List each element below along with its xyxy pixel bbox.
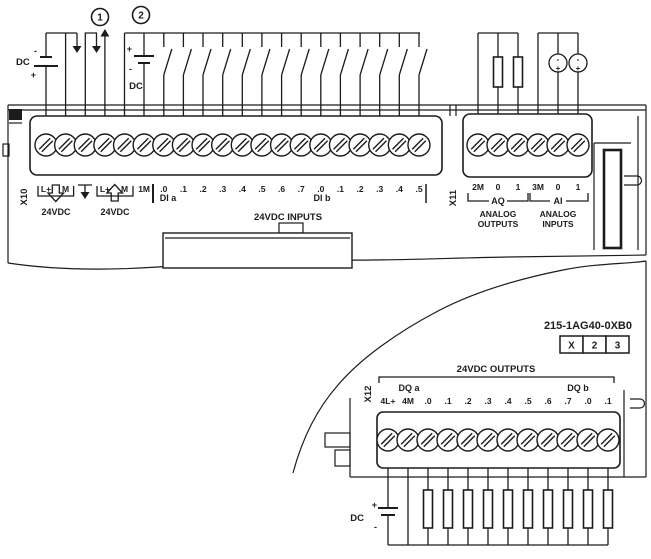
sensor-power-out-arrows	[73, 29, 110, 116]
terminal-label: .1	[180, 184, 187, 194]
terminal-label: 3M	[532, 182, 544, 192]
output-supply-label: DC	[350, 513, 364, 524]
screw-terminal-icon	[597, 429, 619, 451]
din-clip-icon	[9, 109, 22, 120]
di-a-label: DI a	[160, 193, 178, 203]
analog-inputs-caption-2: INPUTS	[542, 219, 574, 229]
callout-2-number: 2	[138, 11, 144, 22]
x11-terminal-labels: 2M013M01	[472, 182, 581, 192]
device-id: 215-1AG40-0XB0 X 2 3	[544, 320, 632, 353]
terminal-label: .3	[219, 184, 226, 194]
input-supply: + - DC	[125, 33, 421, 116]
order-box-char: 3	[615, 341, 621, 352]
x11-terminal-block	[463, 114, 592, 177]
screw-terminal-icon	[349, 134, 371, 156]
analog-output-loads	[478, 33, 523, 114]
outputs-section-label: 24VDC OUTPUTS	[457, 364, 536, 375]
terminal-label: .4	[396, 184, 403, 194]
resistor-icon	[524, 490, 533, 528]
terminal-label: .6	[278, 184, 285, 194]
screw-terminal-icon	[388, 134, 410, 156]
terminal-label: 1	[576, 182, 581, 192]
input-switch-contacts	[164, 33, 427, 116]
x12-terminal-block	[377, 412, 620, 468]
terminal-label: .1	[444, 396, 451, 406]
terminal-label: .5	[524, 396, 531, 406]
screw-terminal-icon	[377, 429, 399, 451]
terminal-label: .4	[504, 396, 511, 406]
terminal-label: .1	[604, 396, 611, 406]
terminal-label: 4M	[402, 396, 414, 406]
wiring-diagram-page: 1 2 DC - + + - DC X10 L+ML+M1M.0.1.2.3.	[0, 0, 651, 554]
expansion-slot-bar	[604, 150, 621, 248]
screw-terminal-icon	[577, 429, 599, 451]
ground-icon-head	[81, 192, 90, 199]
callout-2: 2	[133, 7, 150, 24]
output-load-resistors	[424, 468, 613, 545]
terminal-label: .6	[544, 396, 551, 406]
resistor-icon	[424, 490, 433, 528]
screw-terminal-icon	[251, 134, 273, 156]
terminal-label: 2M	[472, 182, 484, 192]
screw-terminal-icon	[507, 134, 529, 156]
right-latch-icon	[624, 176, 642, 185]
order-box-char: 2	[592, 341, 598, 352]
sensor-out-caption: 24VDC	[100, 207, 130, 217]
terminal-label: .7	[564, 396, 571, 406]
terminal-label: .2	[464, 396, 471, 406]
resistor-icon	[604, 490, 613, 528]
screw-terminal-icon	[212, 134, 234, 156]
resistor-icon	[564, 490, 573, 528]
resistor-icon	[444, 490, 453, 528]
screw-terminal-icon	[567, 134, 589, 156]
analog-inputs-caption-1: ANALOG	[540, 209, 577, 219]
input-supply-plus: +	[127, 44, 132, 54]
source-minus: -	[577, 55, 580, 64]
terminal-label: .4	[239, 184, 246, 194]
screw-terminal-icon	[35, 134, 57, 156]
bottom-clip-detail	[325, 433, 350, 447]
terminal-label: .2	[357, 184, 364, 194]
dq-b-label: DQ b	[567, 383, 589, 393]
screw-terminal-icon	[397, 429, 419, 451]
input-supply-minus: -	[129, 64, 132, 74]
resistor-icon	[514, 57, 523, 87]
ai-label: AI	[554, 196, 563, 206]
di-b-label: DI b	[314, 193, 332, 203]
x12-labels: 24VDC OUTPUTS DQ a DQ b X12 4L+4M.0.1.2.…	[363, 364, 614, 406]
screw-terminal-icon	[537, 429, 559, 451]
terminal-label: 1	[516, 182, 521, 192]
sensor-arrow-wire-2	[85, 33, 96, 116]
plc-wiring-diagram: 1 2 DC - + + - DC X10 L+ML+M1M.0.1.2.3.	[0, 0, 651, 554]
screw-terminal-icon	[477, 429, 499, 451]
screw-terminal-icon	[153, 134, 175, 156]
x12-terminal-labels: 4L+4M.0.1.2.3.4.5.6.7.0.1	[381, 396, 612, 406]
x10-terminal-block	[30, 116, 442, 175]
callout-1: 1	[92, 9, 109, 26]
screw-terminal-icon	[547, 134, 569, 156]
aq-label: AQ	[491, 196, 505, 206]
terminal-label: .2	[199, 184, 206, 194]
screw-terminal-icon	[527, 134, 549, 156]
terminal-label: .0	[584, 396, 591, 406]
cpu-supply-label: DC	[16, 57, 30, 68]
screw-terminal-icon	[114, 134, 136, 156]
terminal-label: .3	[376, 184, 383, 194]
source-plus: +	[556, 64, 561, 73]
screw-terminal-icon	[133, 134, 155, 156]
label-plate-tab	[279, 223, 303, 233]
part-number: 215-1AG40-0XB0	[544, 320, 632, 332]
screw-terminal-icon	[517, 429, 539, 451]
screw-terminal-icon	[329, 134, 351, 156]
x12-connector-label: X12	[363, 386, 374, 403]
x10-terminal-labels: L+ML+M1M.0.1.2.3.4.5.6.7.0.1.2.3.4.5	[41, 184, 423, 194]
x10-connector-label: X10	[19, 189, 30, 206]
screw-terminal-icon	[231, 134, 253, 156]
supply-in-caption: 24VDC	[41, 207, 71, 217]
terminal-label: .5	[258, 184, 265, 194]
resistor-icon	[494, 57, 503, 87]
x11-connector-label: X11	[448, 189, 459, 206]
screw-terminal-icon	[557, 429, 579, 451]
screw-terminal-icon	[55, 134, 77, 156]
source-minus: -	[557, 55, 560, 64]
analog-input-sources: - + - +	[538, 33, 587, 114]
terminal-label: 4L+	[381, 396, 396, 406]
analog-outputs-caption-2: OUTPUTS	[478, 219, 519, 229]
cpu-supply-minus: -	[34, 46, 37, 56]
up-arrow-icon	[100, 29, 109, 37]
screw-terminal-icon	[457, 429, 479, 451]
output-supply-wires	[388, 468, 608, 545]
bottom-clip-detail	[335, 450, 350, 466]
output-supply-minus: -	[374, 522, 377, 532]
terminal-label: .1	[337, 184, 344, 194]
right-latch-icon	[630, 399, 645, 408]
x10-labels: X10 L+ML+M1M.0.1.2.3.4.5.6.7.0.1.2.3.4.5…	[19, 184, 426, 223]
cpu-supply-wires	[46, 33, 77, 116]
screw-terminal-icon	[172, 134, 194, 156]
resistor-icon	[484, 490, 493, 528]
terminal-label: 0	[556, 182, 561, 192]
screw-terminal-icon	[310, 134, 332, 156]
screw-terminal-icon	[192, 134, 214, 156]
input-supply-label: DC	[129, 81, 143, 92]
inputs-section-label: 24VDC INPUTS	[254, 212, 322, 223]
terminal-label: .0	[424, 396, 431, 406]
ai-source-wires	[538, 33, 578, 114]
output-supply-plus: +	[372, 500, 377, 510]
callout-1-number: 1	[97, 13, 103, 24]
screw-terminal-icon	[290, 134, 312, 156]
down-arrow-icon	[73, 46, 82, 53]
ground-icon	[78, 185, 92, 192]
terminal-label: 0	[496, 182, 501, 192]
screw-terminal-icon	[74, 134, 96, 156]
screw-terminal-icon	[497, 429, 519, 451]
terminal-label: .7	[298, 184, 305, 194]
screw-terminal-icon	[437, 429, 459, 451]
screw-terminal-icon	[467, 134, 489, 156]
cpu-power-supply: DC - +	[16, 33, 77, 116]
down-arrow-icon	[92, 46, 101, 53]
screw-terminal-icon	[94, 134, 116, 156]
x11-labels: X11 2M013M01 AQ AI ANALOG OUTPUTS ANALOG…	[448, 182, 588, 229]
resistor-icon	[464, 490, 473, 528]
resistor-icon	[504, 490, 513, 528]
resistor-icon	[544, 490, 553, 528]
input-switch-contact-icon	[164, 33, 427, 116]
input-rail-wires	[125, 33, 421, 116]
screw-terminal-icon	[271, 134, 293, 156]
cpu-supply-plus: +	[31, 70, 36, 80]
dq-a-label: DQ a	[398, 383, 420, 393]
source-plus: +	[576, 64, 581, 73]
resistor-icon	[584, 490, 593, 528]
screw-terminal-icon	[408, 134, 430, 156]
screw-terminal-icon	[487, 134, 509, 156]
terminal-label: .3	[484, 396, 491, 406]
terminal-label: 1M	[138, 184, 150, 194]
terminal-label: .5	[415, 184, 422, 194]
screw-terminal-icon	[369, 134, 391, 156]
screw-terminal-icon	[417, 429, 439, 451]
analog-outputs-caption-1: ANALOG	[480, 209, 517, 219]
label-plate	[163, 223, 352, 268]
order-box-char: X	[568, 341, 575, 352]
